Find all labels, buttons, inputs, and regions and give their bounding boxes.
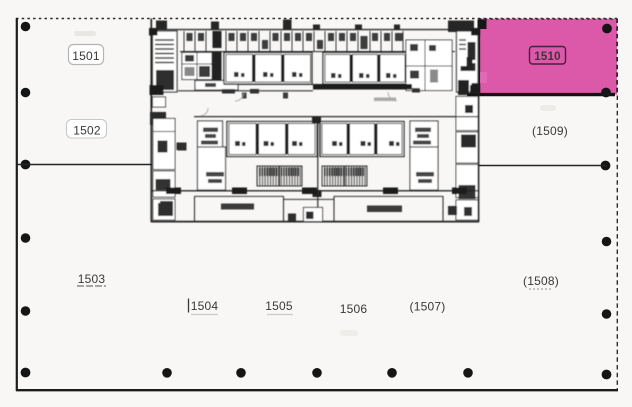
svg-text:1510: 1510 [534, 51, 560, 63]
svg-text:(1509): (1509) [532, 124, 568, 138]
svg-text:1506: 1506 [340, 302, 368, 316]
svg-text:(1507): (1507) [410, 300, 446, 314]
svg-text:(1508): (1508) [523, 274, 559, 288]
svg-text:1503: 1503 [78, 272, 106, 286]
svg-text:1505: 1505 [265, 299, 293, 313]
svg-text:1501: 1501 [72, 49, 100, 63]
svg-text:1502: 1502 [73, 124, 101, 138]
svg-text:1504: 1504 [191, 299, 219, 313]
